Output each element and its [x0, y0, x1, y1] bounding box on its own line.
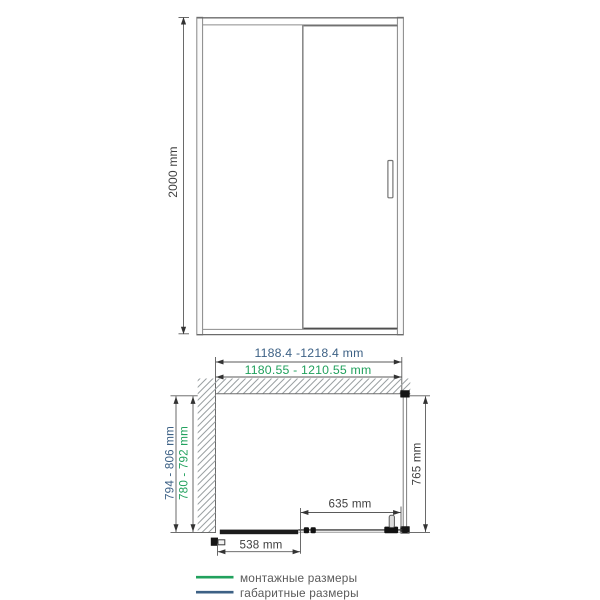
mounting-width-dim-label: 1180.55 - 1210.55 mm [245, 363, 372, 377]
wall-bracket-top [400, 390, 409, 397]
wall-clamp-left-plate [218, 540, 225, 545]
dim-arrow-up [181, 17, 186, 25]
frame-right-jamb [397, 17, 403, 335]
overall-depth-dim-label: 794 - 806 mm [163, 426, 176, 500]
wall-clamp-left [211, 538, 218, 546]
wall-hatch-left [198, 379, 216, 534]
frame-left-jamb [197, 17, 203, 335]
overall-width-dim-label: 1188.4 -1218.4 mm [254, 346, 363, 360]
door-handle-knob-plan [389, 515, 394, 527]
front-height-dim-label: 2000 mm [166, 146, 180, 197]
height-dimension-line [179, 18, 190, 334]
front-view-drawing [179, 17, 404, 335]
legend-mounting-label: монтажные размеры [240, 571, 357, 585]
legend-overall-label: габаритные размеры [240, 586, 359, 600]
door-width-dim-label: 635 mm [328, 498, 371, 511]
dim-arrow-down [181, 327, 186, 335]
legend-lines [196, 577, 234, 592]
door-handle [388, 161, 393, 198]
door-roller-left-b [311, 527, 316, 533]
fixed-panel-track [220, 530, 298, 535]
plan-view-drawing [198, 379, 411, 546]
side-panel-depth-dim-label: 765 mm [411, 442, 424, 485]
shower-enclosure-drawing: 2000 mm 1188.4 -1218.4 mm 1180.55 - 1210… [0, 0, 600, 600]
technical-drawing-linework [0, 0, 600, 600]
wall-hatch-top [216, 379, 411, 394]
mounting-depth-dim-label: 780 - 792 mm [177, 426, 190, 500]
door-roller-left-a [304, 527, 309, 533]
fixed-panel-width-dim-label: 538 mm [239, 538, 282, 551]
